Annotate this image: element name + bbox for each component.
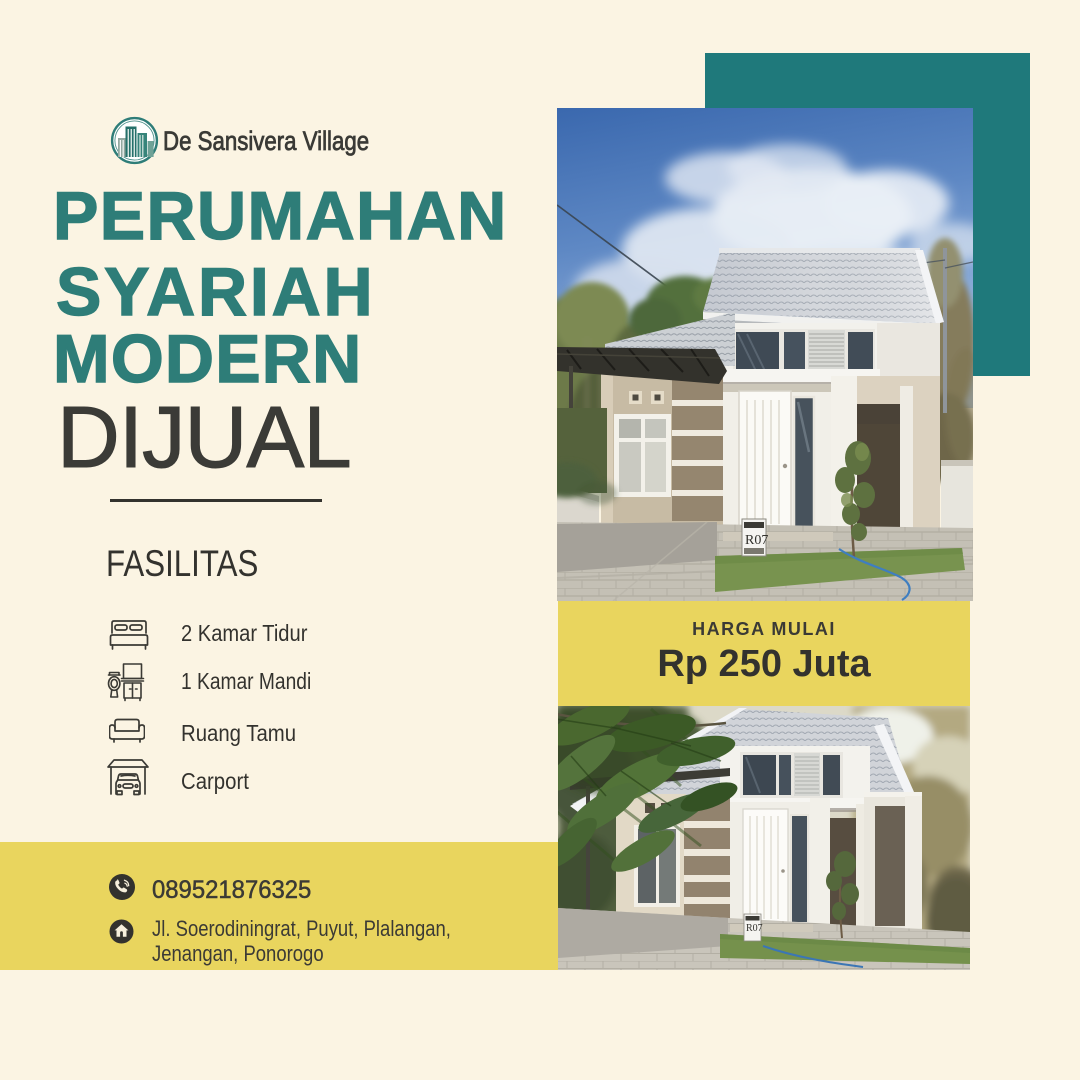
- svg-text:R07: R07: [745, 533, 768, 548]
- svg-text:R07: R07: [746, 923, 763, 934]
